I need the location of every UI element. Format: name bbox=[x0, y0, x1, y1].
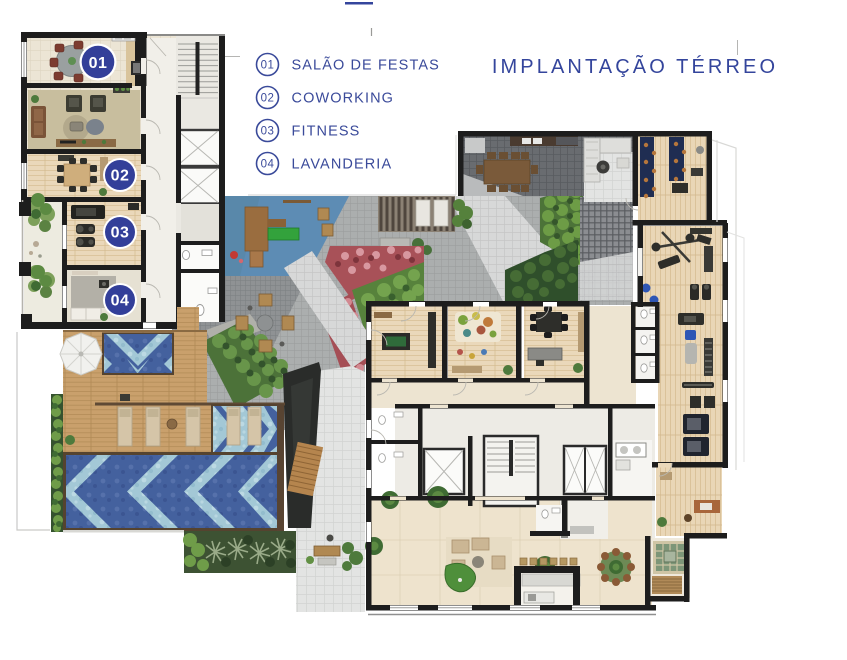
svg-text:03: 03 bbox=[111, 225, 130, 242]
svg-text:04: 04 bbox=[261, 159, 275, 171]
svg-text:SALÃO DE FESTAS: SALÃO DE FESTAS bbox=[292, 57, 440, 74]
svg-text:03: 03 bbox=[261, 126, 275, 138]
svg-text:LAVANDERIA: LAVANDERIA bbox=[292, 157, 393, 173]
svg-text:02: 02 bbox=[261, 93, 275, 105]
svg-text:01: 01 bbox=[261, 60, 275, 72]
svg-text:04: 04 bbox=[111, 293, 130, 310]
svg-text:02: 02 bbox=[111, 168, 130, 185]
svg-text:COWORKING: COWORKING bbox=[292, 91, 395, 107]
svg-text:01: 01 bbox=[89, 55, 108, 72]
svg-text:IMPLANTAÇÃO TÉRREO: IMPLANTAÇÃO TÉRREO bbox=[492, 54, 778, 78]
svg-text:FITNESS: FITNESS bbox=[292, 124, 361, 140]
